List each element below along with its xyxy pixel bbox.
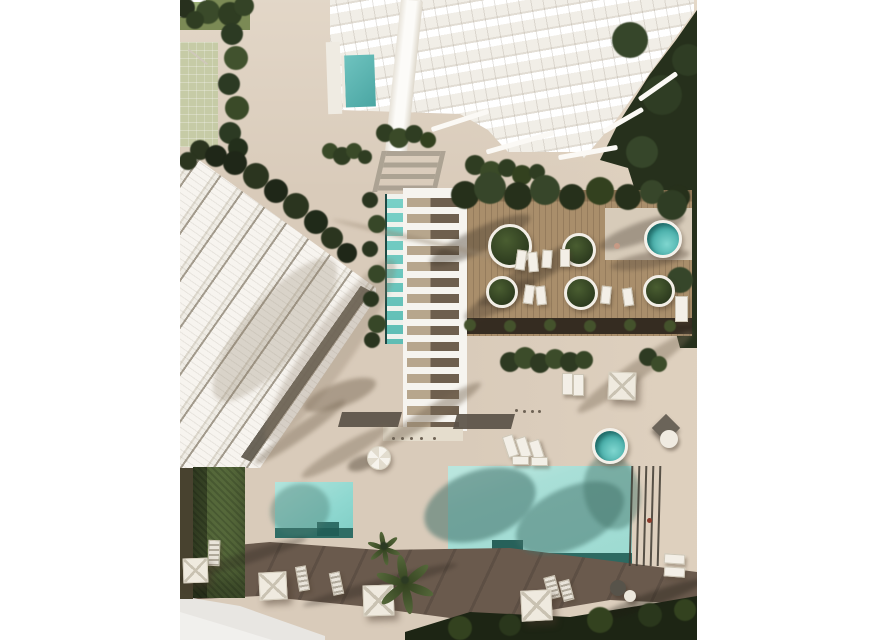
sun-lounger: [295, 565, 310, 592]
palm-shadow: [375, 376, 485, 453]
tree-canopy: [586, 177, 614, 205]
square-umbrella: [520, 589, 553, 622]
sun-lounger: [622, 287, 634, 306]
palm-center: [401, 576, 409, 584]
tree-canopy: [474, 172, 506, 204]
tree-canopy: [575, 351, 593, 369]
tree-canopy: [368, 265, 386, 283]
pool-rail-line: [643, 466, 648, 566]
round-umbrella: [367, 446, 391, 470]
sun-lounger: [560, 249, 570, 267]
tree-canopy: [368, 215, 386, 233]
tree-canopy: [364, 332, 380, 348]
balcony-rail: [486, 130, 555, 154]
round-spa-pool: [592, 428, 628, 464]
palm-center: [380, 542, 388, 550]
tree-canopy: [420, 132, 436, 148]
tree-canopy: [358, 150, 372, 164]
tree-canopy: [504, 182, 532, 210]
small-marker: [647, 518, 652, 523]
sun-lounger: [527, 252, 539, 273]
bollard-dot: [538, 410, 541, 413]
sun-lounger: [531, 457, 548, 466]
tree-canopy: [448, 616, 472, 640]
sun-lounger: [523, 284, 536, 304]
round-planter: [486, 276, 518, 308]
bollard-dot: [410, 437, 413, 440]
aerial-render-content: [180, 0, 697, 640]
tree-canopy: [225, 96, 249, 120]
tree-canopy: [559, 184, 585, 210]
sun-lounger: [600, 286, 612, 305]
tree-canopy: [638, 603, 662, 627]
bollard-dot: [433, 437, 436, 440]
tree-canopy: [584, 320, 596, 332]
balcony-rail: [431, 109, 490, 132]
tree-canopy: [218, 73, 240, 95]
tree-canopy: [234, 0, 254, 16]
pool-rail-line: [650, 466, 655, 566]
sun-lounger: [573, 374, 584, 396]
sun-lounger: [664, 566, 686, 577]
sun-lounger: [558, 579, 574, 602]
tree-canopy: [544, 319, 556, 331]
tree-canopy: [674, 599, 696, 621]
tree-canopy: [626, 136, 658, 168]
pool-rail-line: [657, 466, 662, 566]
round-planter: [643, 275, 675, 307]
ball-chair: [624, 590, 636, 602]
tree-canopy: [368, 315, 386, 333]
tree-canopy: [624, 319, 636, 331]
small-marker: [614, 243, 620, 249]
tree-canopy: [587, 607, 613, 633]
bollard-dot: [531, 410, 534, 413]
sun-lounger: [664, 553, 686, 564]
bollard-dot: [523, 410, 526, 413]
tree-canopy: [180, 152, 197, 170]
bollard-dot: [420, 437, 423, 440]
tree-canopy: [362, 241, 378, 257]
tree-canopy: [186, 11, 204, 29]
tree-canopy: [530, 175, 560, 205]
render-canvas: [0, 0, 878, 640]
sun-lounger: [208, 540, 221, 566]
bollard-dot: [515, 409, 518, 412]
bollard-dot: [392, 437, 395, 440]
round-planter: [564, 276, 598, 310]
tree-canopy: [499, 614, 521, 636]
tree-canopy: [464, 319, 476, 331]
tree-canopy: [363, 291, 379, 307]
square-umbrella: [258, 571, 287, 600]
bollard-dot: [401, 437, 404, 440]
tree-canopy: [615, 184, 641, 210]
square-umbrella: [608, 372, 637, 401]
sun-lounger: [562, 373, 573, 395]
tree-canopy: [657, 190, 687, 220]
palm-shadow: [264, 477, 335, 543]
tree-canopy: [504, 320, 516, 332]
sun-lounger: [541, 250, 552, 269]
sun-lounger: [675, 296, 688, 322]
tree-canopy: [362, 192, 378, 208]
balcony-rail: [602, 107, 644, 134]
tree-canopy: [337, 243, 357, 263]
scene-objects: [180, 0, 697, 640]
sun-lounger: [535, 286, 547, 306]
tree-canopy: [221, 23, 243, 45]
tree-canopy: [651, 356, 667, 372]
tree-canopy: [224, 46, 248, 70]
tree-canopy: [612, 22, 648, 58]
ball-chair: [660, 430, 678, 448]
round-spa-pool: [644, 220, 682, 258]
square-umbrella: [183, 558, 209, 584]
sun-lounger: [512, 456, 529, 465]
balcony-rail: [558, 145, 618, 160]
